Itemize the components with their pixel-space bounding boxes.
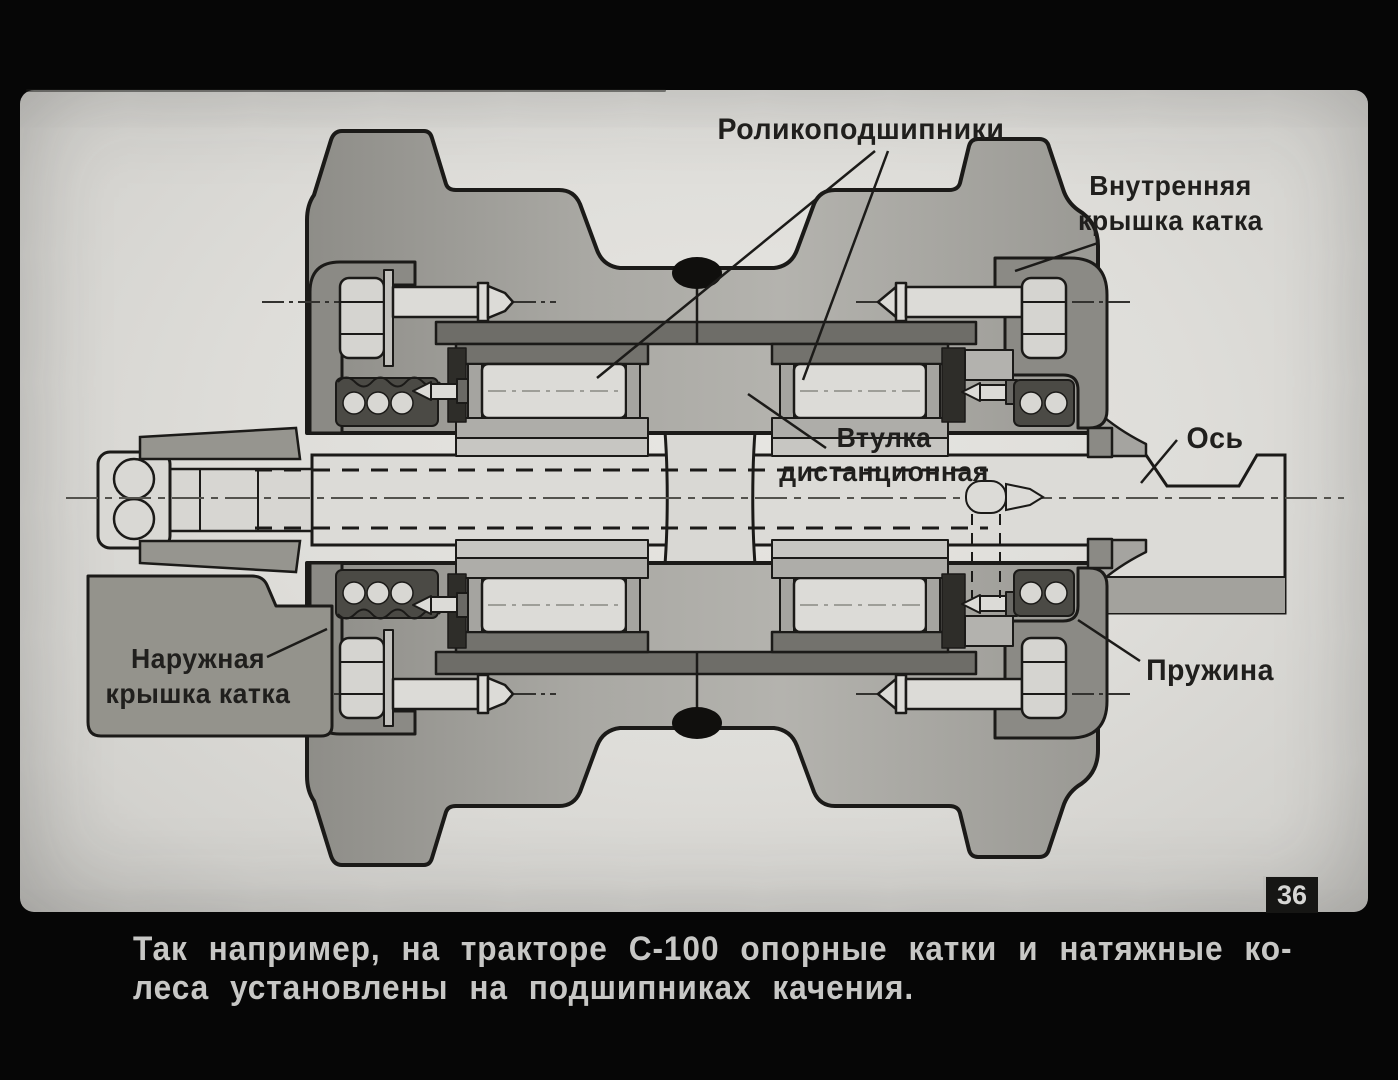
- label-inner-cover-line1: Внутренняя: [1064, 168, 1278, 203]
- hub-block-top: [140, 428, 300, 459]
- roller-body-bottom-half-mirrored: [262, 539, 1146, 865]
- axle-section-shade: [1107, 577, 1285, 613]
- label-axle-text: Ось: [1187, 422, 1244, 455]
- slide-number-text: 36: [1277, 880, 1307, 911]
- label-outer-cover-line2: крышка катка: [97, 676, 298, 711]
- caption-line-1: Так например, на тракторе С-100 опорные …: [133, 930, 1292, 969]
- seal-ring-right: [942, 348, 965, 422]
- hub-block-bottom: [140, 541, 300, 572]
- filmstrip-frame: Роликоподшипники Внутренняя крышка катка…: [0, 0, 1398, 1080]
- bore-rim-strip: [436, 322, 976, 344]
- label-inner-cover: Внутренняя крышка катка: [1064, 168, 1278, 238]
- inner-cover-foot: [1088, 428, 1112, 457]
- label-spacer-sleeve-line1: Втулка: [774, 421, 994, 455]
- label-spacer-sleeve: Втулка дистанционная: [774, 421, 994, 489]
- axle-neck: [170, 469, 312, 531]
- slide-number-badge: 36: [1266, 877, 1318, 913]
- caption-line-2: леса установлены на подшипниках качения.: [133, 969, 1292, 1008]
- label-inner-cover-line2: крышка катка: [1064, 203, 1278, 238]
- label-spring-text: Пружина: [1146, 654, 1274, 687]
- label-spacer-sleeve-line2: дистанционная: [774, 455, 994, 489]
- caption: Так например, на тракторе С-100 опорные …: [133, 930, 1292, 1008]
- seal-spacer-right: [965, 350, 1013, 380]
- lube-hole-dot: [672, 257, 722, 289]
- label-roller-bearings-text: Роликоподшипники: [718, 113, 1005, 146]
- roller-body-top-half: [262, 131, 1146, 457]
- roller-assembly-diagram: [0, 0, 1398, 1080]
- label-axle: Ось: [1172, 422, 1258, 456]
- label-outer-cover-line1: Наружная: [97, 641, 298, 676]
- label-roller-bearings: Роликоподшипники: [718, 113, 1003, 147]
- label-spring: Пружина: [1144, 654, 1277, 688]
- label-outer-cover: Наружная крышка катка: [97, 641, 298, 711]
- hex-nut: [98, 452, 170, 548]
- corrugated-spring-seal-right: [1014, 380, 1074, 426]
